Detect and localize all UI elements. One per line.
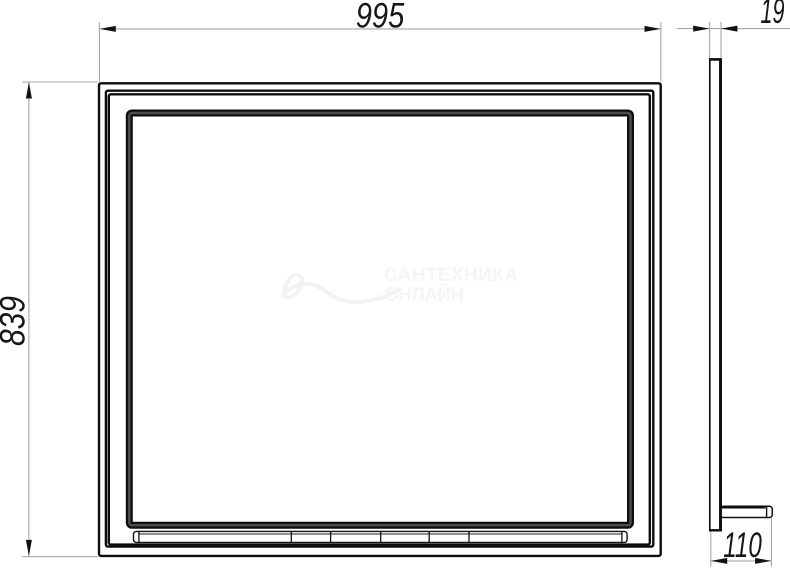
svg-text:ОНЛАЙН: ОНЛАЙН <box>384 284 466 306</box>
svg-text:110: 110 <box>723 526 762 565</box>
svg-text:839: 839 <box>0 296 33 346</box>
svg-text:995: 995 <box>356 0 405 36</box>
svg-text:САНТЕХНИКА: САНТЕХНИКА <box>384 265 520 286</box>
svg-text:19: 19 <box>761 0 785 31</box>
